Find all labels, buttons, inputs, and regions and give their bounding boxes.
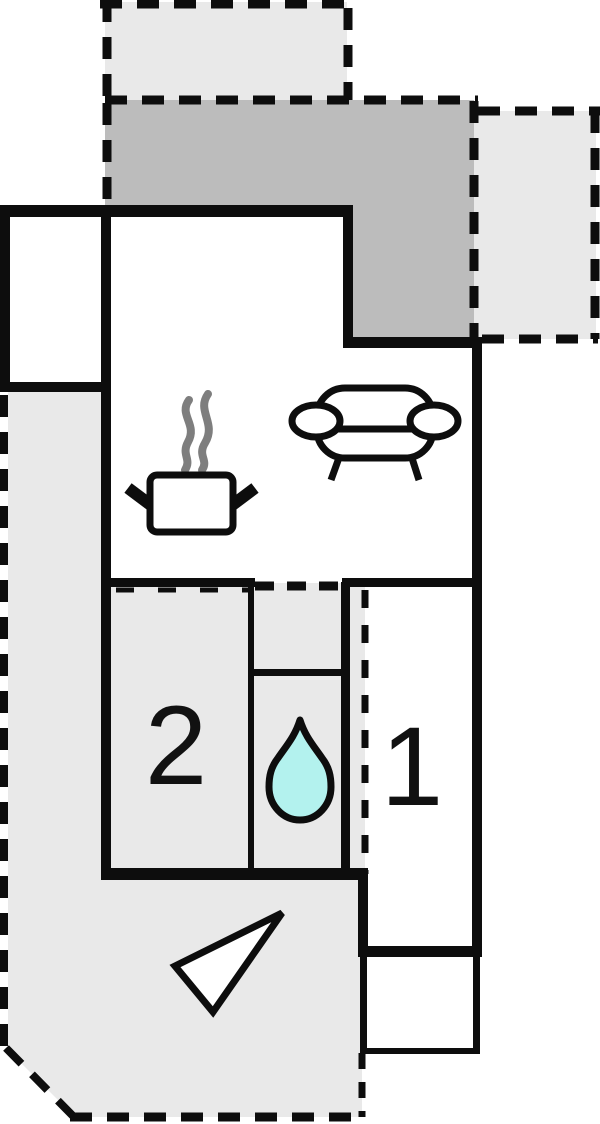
- wall-bedrooms-bottom: [101, 868, 368, 880]
- floor-plan: 2 1: [0, 0, 600, 1124]
- sofa-armrest-right: [410, 405, 458, 437]
- covered-terrace-fill: [105, 100, 474, 340]
- wall-step-down-vertical: [358, 874, 368, 954]
- wall-utility-right: [473, 957, 480, 1054]
- wall-left-outer: [0, 205, 10, 392]
- steam-wave-left: [185, 400, 191, 470]
- right-balcony-fill: [474, 111, 596, 339]
- steam-wave-right: [202, 394, 209, 470]
- wall-bedroom2-shower-divider: [248, 582, 254, 874]
- wall-bedroom1-bottom: [358, 946, 482, 957]
- wall-shower-divider: [251, 669, 348, 676]
- wall-left-inner: [101, 205, 111, 880]
- pot-body: [150, 475, 233, 532]
- wall-top: [0, 205, 353, 217]
- wall-right: [472, 337, 482, 957]
- bedroom-2-label: 2: [145, 683, 207, 808]
- sofa-icon: [292, 388, 458, 480]
- wall-step-horizontal: [343, 337, 482, 348]
- wall-entry-room-bottom: [0, 382, 111, 392]
- area-fills: [8, 2, 596, 1117]
- wall-bedrooms-top-right: [342, 578, 482, 587]
- wall-shower-right: [341, 582, 350, 874]
- wall-step-vertical: [343, 205, 353, 348]
- wall-utility-left: [360, 957, 367, 1054]
- steam-icon: [185, 394, 209, 470]
- top-balcony-fill: [105, 2, 347, 103]
- wall-bedrooms-top-left: [101, 578, 255, 587]
- wall-utility-bottom: [360, 1048, 480, 1054]
- sofa-armrest-left: [292, 405, 340, 437]
- cooking-pot-icon: [128, 394, 255, 532]
- bedroom-1-label: 1: [381, 704, 443, 829]
